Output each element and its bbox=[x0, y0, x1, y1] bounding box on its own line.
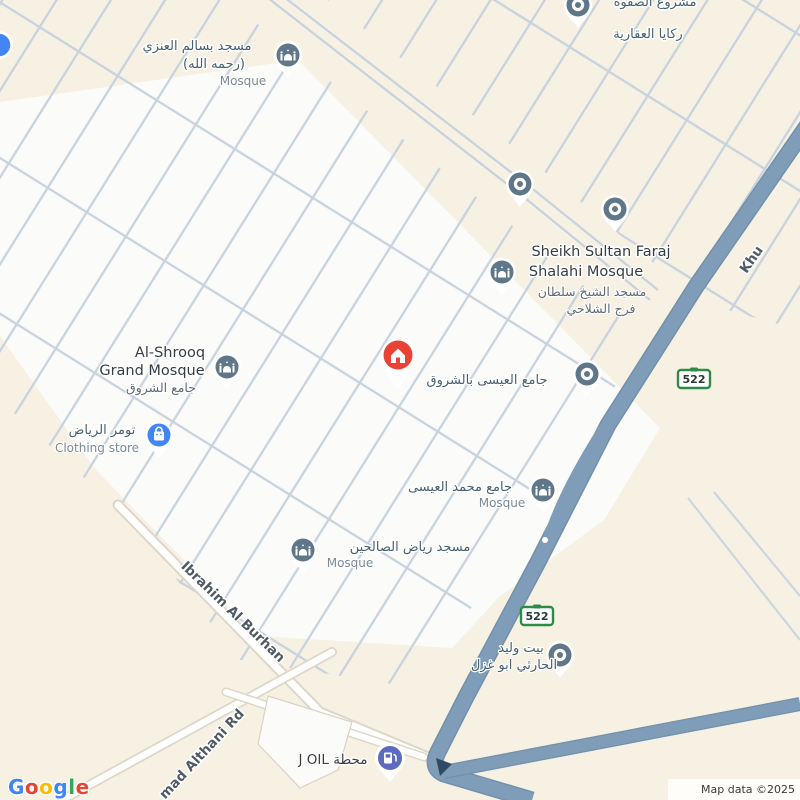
svg-text:Clothing store: Clothing store bbox=[55, 441, 139, 455]
svg-text:مسجد رياض الصالحين: مسجد رياض الصالحين bbox=[350, 540, 471, 555]
svg-text:ركايا العقارية: ركايا العقارية bbox=[613, 27, 682, 42]
svg-text:Shalahi Mosque: Shalahi Mosque bbox=[529, 264, 643, 280]
svg-text:(رحمه الله): (رحمه الله) bbox=[183, 57, 245, 72]
label-joil-station[interactable]: محطة J OIL bbox=[298, 752, 368, 768]
google-letter: o bbox=[25, 775, 39, 799]
svg-text:Map data ©2025: Map data ©2025 bbox=[701, 783, 795, 796]
google-letter: g bbox=[53, 775, 68, 799]
map-canvas[interactable]: Ibrahim Al Burhan mad Althani Rd Khu 522… bbox=[0, 0, 800, 800]
svg-text:جامع محمد العيسى: جامع محمد العيسى bbox=[408, 480, 512, 495]
svg-text:Grand Mosque: Grand Mosque bbox=[99, 363, 204, 379]
svg-text:بيت وليد: بيت وليد bbox=[498, 641, 543, 656]
route-shield-522-a: 522 bbox=[678, 368, 710, 389]
svg-text:مسجد بسالم العنزي: مسجد بسالم العنزي bbox=[143, 39, 252, 54]
google-letter: o bbox=[39, 775, 53, 799]
svg-text:محطة J OIL: محطة J OIL bbox=[298, 752, 368, 768]
svg-text:تومر الرياض: تومر الرياض bbox=[69, 423, 136, 438]
svg-text:Sheikh Sultan Faraj: Sheikh Sultan Faraj bbox=[531, 244, 670, 260]
svg-text:فرج الشلاحي: فرج الشلاحي bbox=[567, 301, 636, 317]
svg-text:الحارثي ابو غزل: الحارثي ابو غزل bbox=[471, 658, 557, 673]
svg-text:522: 522 bbox=[526, 610, 549, 623]
svg-text:Mosque: Mosque bbox=[479, 496, 526, 510]
svg-text:مسجد الشيخ سلطان: مسجد الشيخ سلطان bbox=[538, 284, 647, 299]
map-svg[interactable]: Ibrahim Al Burhan mad Althani Rd Khu 522… bbox=[0, 0, 800, 800]
google-letter: G bbox=[8, 775, 25, 799]
google-letter: l bbox=[68, 775, 75, 799]
svg-text:جامع الشروق: جامع الشروق bbox=[126, 380, 196, 396]
svg-text:522: 522 bbox=[683, 373, 706, 386]
svg-text:Al-Shrooq: Al-Shrooq bbox=[135, 345, 205, 361]
attribution: Map data ©2025 bbox=[668, 779, 800, 800]
google-letter: e bbox=[76, 775, 90, 799]
label-eisa-shrooq[interactable]: جامع العيسى بالشروق bbox=[426, 373, 547, 388]
svg-text:Mosque: Mosque bbox=[327, 556, 374, 570]
svg-text:Mosque: Mosque bbox=[220, 74, 267, 88]
svg-text:مشروع الصفوة: مشروع الصفوة bbox=[614, 0, 697, 10]
google-logo[interactable]: Google bbox=[8, 775, 90, 799]
route-shield-522-b: 522 bbox=[521, 605, 553, 626]
svg-text:جامع العيسى بالشروق: جامع العيسى بالشروق bbox=[426, 373, 547, 388]
